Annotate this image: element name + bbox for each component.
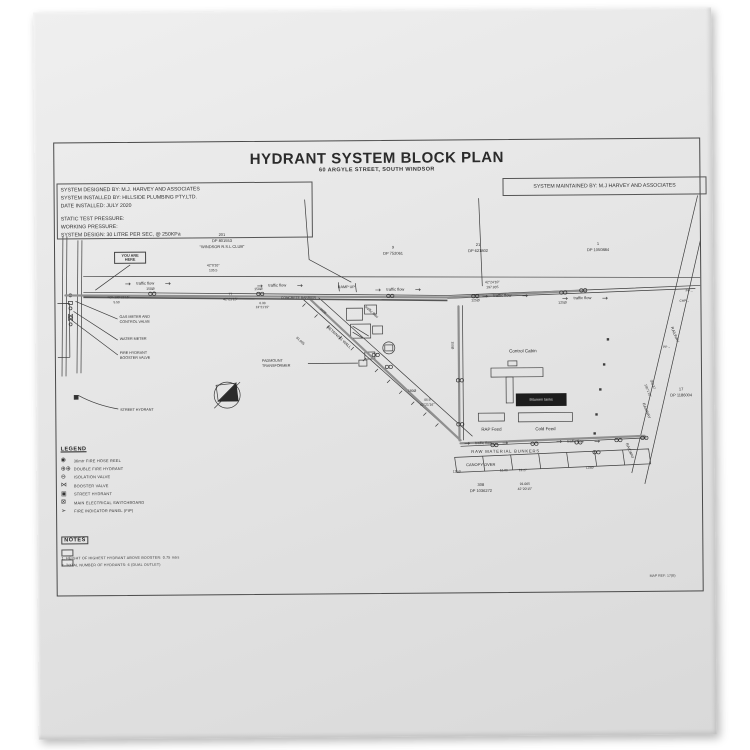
- plan-label: 150Ø: [146, 288, 154, 292]
- plan-label: CONTROL VALVE: [120, 320, 150, 324]
- plan-label: DP 801553: [212, 239, 232, 244]
- plan-label: traffic flow: [268, 283, 286, 288]
- plan-label: BOOSTER VALVE: [120, 356, 150, 360]
- note-box: [61, 549, 73, 557]
- plan-label: PADMOUNT: [262, 359, 283, 363]
- legend-label: FIRE INDICATOR PANEL (FIP): [74, 508, 133, 513]
- plan-label: 42°21'16": [420, 404, 435, 408]
- plan-label: PP→: [686, 290, 693, 294]
- plan-board: HYDRANT SYSTEM BLOCK PLAN 60 ARGYLE STRE…: [33, 7, 717, 739]
- plan-label: 17: [679, 387, 683, 391]
- legend-label: BOOSTER VALVE: [74, 483, 109, 488]
- plan-label: 308: [478, 483, 485, 487]
- legend-label: MAIN ELECTRICAL SWITCHBOARD: [74, 499, 144, 505]
- plan-label: 9: [392, 246, 394, 250]
- plan-label: traffic flow: [573, 296, 591, 301]
- plan-label: CHP→: [679, 300, 689, 304]
- legend-label: ISOLATION VALVE: [74, 475, 111, 480]
- plan-label: 125Ø: [453, 471, 461, 475]
- plan-label: DP 621802: [468, 249, 488, 254]
- maintainer-text: SYSTEM MAINTAINED BY: M.J HARVEY AND ASS…: [533, 182, 675, 191]
- plan-label: RAW MATERIAL BUNKERS: [471, 449, 540, 454]
- note-line: 1. HEIGHT OF HIGHEST HYDRANT ABOVE BOOST…: [61, 554, 321, 560]
- plan-label: 12.80: [500, 469, 508, 473]
- plan-label: STREET HYDRANT: [120, 408, 153, 412]
- plan-label: RAP Feed: [481, 428, 501, 433]
- plan-label: 180Ø: [408, 390, 416, 394]
- plan-label: Control Cabin: [509, 349, 537, 354]
- fire-indicator-panel-icon: ➢: [61, 508, 74, 514]
- main-electrical-switchboard-icon: ⊠: [61, 500, 74, 506]
- legend-label: DOUBLE FIRE HYDRANT: [74, 466, 124, 471]
- plan-label: traffic flow: [475, 441, 492, 445]
- plan-label: CONCRETE BARRIER: [281, 297, 316, 301]
- booster-valve-icon: ⋈: [61, 483, 74, 489]
- fire-hose-reel-icon: ◉: [61, 458, 74, 464]
- plan-label: 1: [597, 242, 599, 246]
- system-info-box: SYSTEM DESIGNED BY: M.J. HARVEY AND ASSO…: [56, 181, 312, 239]
- plan-label: TRANSFORMER: [262, 364, 291, 368]
- plan-label: DP 1036272: [470, 489, 492, 494]
- plan-label: DP 1186004: [670, 393, 692, 398]
- plan-label: DP 1050884: [587, 248, 609, 253]
- plan-label: CANOPY OVER: [466, 463, 495, 468]
- plan-label: 13.27: [519, 469, 527, 473]
- legend-label: 36mtr FIRE HOSE REEL: [74, 458, 121, 463]
- plan-label: “WINDSOR R.S.L CLUB”: [200, 245, 245, 250]
- plan-label: DP 752061: [383, 252, 403, 257]
- plan-label: 21: [476, 243, 480, 247]
- legend: LEGEND ◉ 36mtr FIRE HOSE REEL ⊕⊕ DOUBLE …: [61, 445, 222, 515]
- system-info-block2: STATIC TEST PRESSURE:WORKING PRESSURE:SY…: [61, 214, 309, 240]
- plan-label: 5.50: [113, 301, 119, 305]
- double-fire-hydrant-icon: ⊕⊕: [61, 466, 74, 472]
- drawing-sheet: HYDRANT SYSTEM BLOCK PLAN 60 ARGYLE STRE…: [53, 137, 704, 596]
- isolation-valve-icon: ⊖: [61, 474, 74, 480]
- plan-label: 150Ø: [254, 288, 262, 292]
- plan-label: 42°20'15": [518, 488, 533, 492]
- plan-label: 125Ø: [471, 299, 479, 303]
- note-line: 2. TOTAL NUMBER OF HYDRANTS: 6 (DUAL OUT…: [61, 561, 321, 567]
- photo-background: HYDRANT SYSTEM BLOCK PLAN 60 ARGYLE STRE…: [0, 0, 750, 750]
- plan-label: traffic flow: [567, 439, 584, 443]
- plan-label: 150Ø: [450, 341, 454, 349]
- legend-row: ➢ FIRE INDICATOR PANEL (FIP): [61, 506, 221, 516]
- plan-label: PP→: [663, 346, 670, 350]
- plan-label: GAS METER AND: [120, 315, 150, 319]
- plan-label: Cold Feed: [535, 427, 555, 432]
- plan-label: 201: [219, 233, 226, 237]
- plan-label: traffic flow: [493, 294, 511, 299]
- plan-label: 125Ø: [558, 302, 566, 306]
- legend-heading: LEGEND: [61, 445, 221, 452]
- notes-items: 1. HEIGHT OF HIGHEST HYDRANT ABOVE BOOST…: [61, 554, 321, 569]
- plan-label: 197.935: [486, 286, 498, 290]
- plan-label: YOU ARE HERE: [114, 252, 146, 265]
- plan-label: FIRE HYDRANT: [120, 351, 147, 355]
- maintainer-info-box: SYSTEM MAINTAINED BY: M.J HARVEY AND ASS…: [502, 176, 706, 196]
- plan-label: 42°21'15": [223, 298, 238, 302]
- plan-label: RAMP UP: [338, 285, 355, 289]
- map-ref: MAP REF: 17(B): [650, 574, 676, 578]
- plan-label: 125Ø: [586, 467, 594, 471]
- plan-label: traffic flow: [136, 282, 154, 287]
- plan-label: traffic flow: [386, 288, 404, 293]
- plan-label: 135.5: [209, 269, 218, 273]
- street-hydrant-icon: ▣: [61, 491, 74, 497]
- plan-label: 13°21'15": [256, 306, 270, 310]
- plan-label: WATER METER: [120, 337, 147, 341]
- system-info-block1: SYSTEM DESIGNED BY: M.J. HARVEY AND ASSO…: [61, 185, 309, 211]
- legend-label: STREET HYDRANT: [74, 491, 112, 496]
- legend-items: ◉ 36mtr FIRE HOSE REEL ⊕⊕ DOUBLE FIRE HY…: [61, 455, 221, 515]
- plan-label: Bitumen tanks: [530, 398, 553, 402]
- notes-heading: NOTES: [61, 536, 89, 544]
